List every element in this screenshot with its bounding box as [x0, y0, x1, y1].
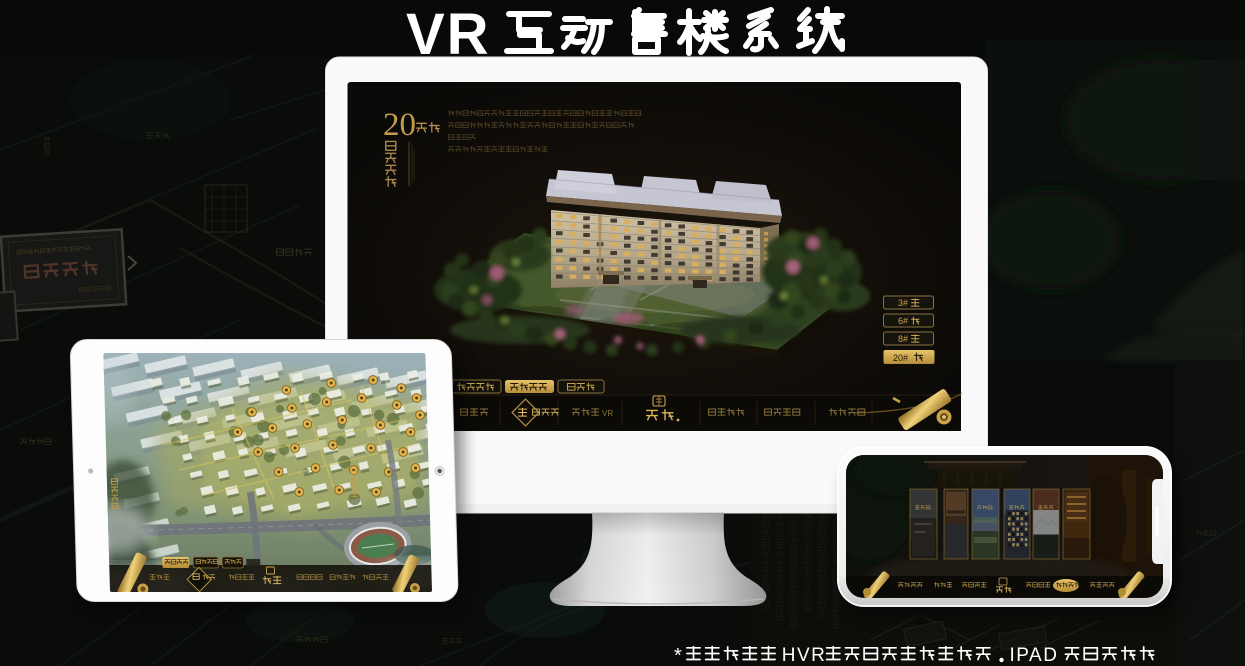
svg-text:VR: VR	[406, 2, 491, 67]
svg-text:3#: 3#	[898, 298, 908, 308]
svg-text:VR: VR	[602, 409, 613, 418]
svg-text:*: *	[674, 645, 682, 666]
svg-text:6#: 6#	[898, 316, 908, 326]
svg-text:20#: 20#	[893, 353, 908, 363]
svg-text:HVR: HVR	[782, 645, 827, 666]
svg-text:20: 20	[383, 107, 416, 143]
svg-text:8#: 8#	[898, 334, 908, 344]
svg-text:IPAD: IPAD	[1010, 645, 1059, 666]
